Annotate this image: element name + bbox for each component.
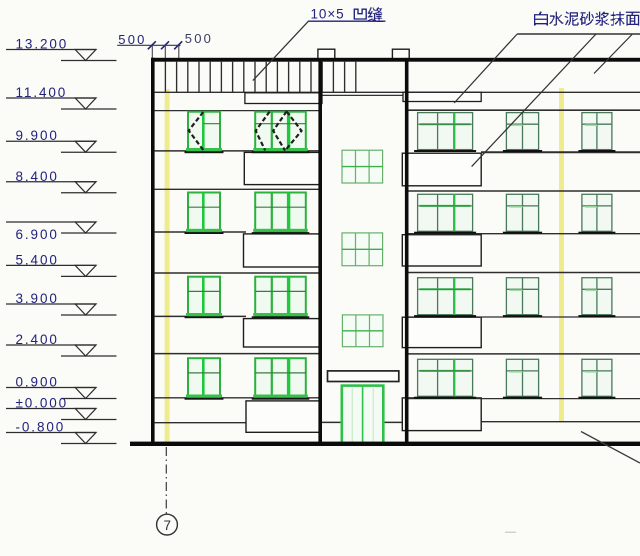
svg-text:5.400: 5.400 (16, 252, 59, 267)
svg-text:500: 500 (185, 31, 213, 46)
svg-text:8.400: 8.400 (16, 169, 59, 184)
svg-text:10×5: 10×5 (311, 6, 345, 21)
svg-text:-0.800: -0.800 (16, 420, 66, 435)
svg-text:6.900: 6.900 (16, 227, 59, 242)
svg-text:±0.000: ±0.000 (16, 396, 69, 411)
svg-text:11.400: 11.400 (16, 85, 68, 100)
svg-text:0.900: 0.900 (16, 375, 59, 390)
svg-text:7: 7 (163, 518, 171, 533)
svg-text:9.900: 9.900 (16, 128, 59, 143)
svg-text:13.200: 13.200 (16, 37, 69, 52)
svg-text:500: 500 (118, 32, 146, 47)
svg-text:2.400: 2.400 (16, 332, 59, 347)
svg-text:3.900: 3.900 (16, 291, 59, 306)
